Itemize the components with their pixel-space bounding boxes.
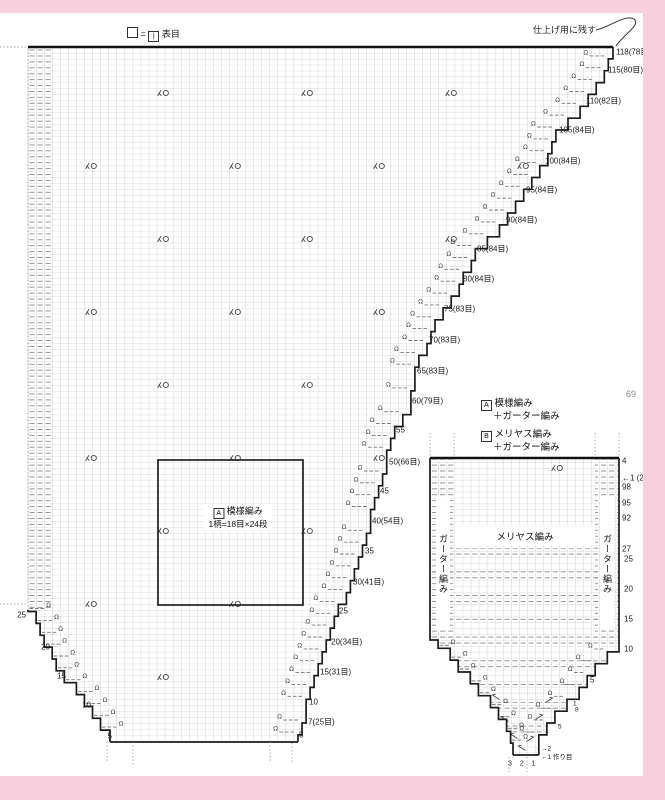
svg-text:Ω: Ω: [362, 441, 367, 448]
svg-text:Ω: Ω: [285, 678, 290, 685]
svg-text:Ω: Ω: [378, 405, 383, 412]
svg-text:Ω: Ω: [402, 334, 407, 341]
svg-text:Ω: Ω: [451, 639, 456, 646]
svg-text:Ω: Ω: [426, 287, 431, 294]
svg-text:Ω: Ω: [560, 678, 565, 685]
svg-text:Ω: Ω: [277, 714, 282, 721]
svg-text:Ω: Ω: [410, 310, 415, 317]
svg-text:Ω: Ω: [511, 710, 516, 717]
svg-text:Ω: Ω: [515, 156, 520, 163]
svg-text:Ω: Ω: [366, 429, 371, 436]
svg-text:Ω: Ω: [46, 602, 51, 609]
svg-text:Ω: Ω: [119, 721, 124, 728]
svg-text:Ω: Ω: [536, 702, 541, 709]
svg-text:Ω: Ω: [58, 626, 63, 633]
svg-text:Ω: Ω: [527, 132, 532, 139]
svg-text:Ω: Ω: [334, 548, 339, 555]
svg-text:Ω: Ω: [499, 180, 504, 187]
svg-text:Ω: Ω: [314, 595, 319, 602]
svg-text:Ω: Ω: [62, 638, 67, 645]
svg-text:Ω: Ω: [358, 465, 363, 472]
svg-text:Ω: Ω: [491, 686, 496, 693]
svg-text:Ω: Ω: [394, 346, 399, 353]
svg-text:Ω: Ω: [503, 698, 508, 705]
svg-text:Ω: Ω: [273, 725, 278, 732]
svg-text:Ω: Ω: [350, 488, 355, 495]
svg-text:Ω: Ω: [326, 571, 331, 578]
svg-text:Ω: Ω: [418, 298, 423, 305]
svg-text:Ω: Ω: [563, 85, 568, 92]
svg-text:Ω: Ω: [301, 631, 306, 638]
svg-text:Ω: Ω: [293, 654, 298, 661]
svg-text:Ω: Ω: [338, 536, 343, 543]
svg-text:Ω: Ω: [447, 251, 452, 258]
callout-curve: [596, 18, 636, 46]
svg-text:Ω: Ω: [571, 73, 576, 80]
svg-text:Ω: Ω: [297, 642, 302, 649]
svg-text:Ω: Ω: [103, 697, 108, 704]
pink-border-top: [0, 0, 665, 13]
svg-text:Ω: Ω: [386, 381, 391, 388]
svg-text:Ω: Ω: [555, 97, 560, 104]
svg-text:Ω: Ω: [483, 204, 488, 211]
svg-text:Ω: Ω: [531, 121, 536, 128]
svg-text:Ω: Ω: [568, 666, 573, 673]
svg-text:Ω: Ω: [475, 215, 480, 222]
svg-text:Ω: Ω: [310, 607, 315, 614]
book-page: ΩΩΩΩΩΩΩΩΩΩΩΩΩΩΩΩΩΩΩΩΩΩΩΩΩΩΩΩΩΩΩΩΩΩΩΩΩΩΩΩ…: [0, 0, 665, 800]
svg-text:Ω: Ω: [346, 500, 351, 507]
svg-text:Ω: Ω: [491, 192, 496, 199]
svg-text:Ω: Ω: [580, 61, 585, 68]
svg-text:Ω: Ω: [588, 642, 593, 649]
svg-text:Ω: Ω: [70, 650, 75, 657]
svg-text:Ω: Ω: [576, 654, 581, 661]
svg-text:Ω: Ω: [519, 722, 524, 729]
svg-text:Ω: Ω: [390, 358, 395, 365]
svg-text:Ω: Ω: [548, 690, 553, 697]
svg-text:Ω: Ω: [523, 734, 528, 741]
svg-text:Ω: Ω: [528, 714, 533, 721]
svg-text:Ω: Ω: [330, 559, 335, 566]
svg-text:Ω: Ω: [434, 275, 439, 282]
svg-text:Ω: Ω: [306, 619, 311, 626]
svg-text:Ω: Ω: [507, 168, 512, 175]
svg-text:Ω: Ω: [289, 666, 294, 673]
svg-text:Ω: Ω: [584, 49, 589, 56]
svg-text:Ω: Ω: [83, 673, 88, 680]
pink-border-right: [643, 0, 665, 800]
svg-text:Ω: Ω: [74, 661, 79, 668]
svg-text:Ω: Ω: [370, 417, 375, 424]
svg-text:Ω: Ω: [406, 322, 411, 329]
svg-text:Ω: Ω: [543, 109, 548, 116]
svg-text:Ω: Ω: [342, 524, 347, 531]
svg-text:Ω: Ω: [322, 583, 327, 590]
svg-text:Ω: Ω: [95, 685, 100, 692]
svg-text:Ω: Ω: [463, 227, 468, 234]
knitting-charts: ΩΩΩΩΩΩΩΩΩΩΩΩΩΩΩΩΩΩΩΩΩΩΩΩΩΩΩΩΩΩΩΩΩΩΩΩΩΩΩΩ…: [0, 0, 665, 800]
svg-text:Ω: Ω: [463, 651, 468, 658]
pink-border-bottom: [0, 776, 665, 800]
svg-text:Ω: Ω: [54, 614, 59, 621]
svg-text:Ω: Ω: [111, 709, 116, 716]
svg-text:Ω: Ω: [438, 263, 443, 270]
svg-text:Ω: Ω: [281, 690, 286, 697]
svg-text:Ω: Ω: [354, 476, 359, 483]
svg-text:Ω: Ω: [483, 674, 488, 681]
svg-text:Ω: Ω: [471, 663, 476, 670]
svg-text:Ω: Ω: [523, 144, 528, 151]
